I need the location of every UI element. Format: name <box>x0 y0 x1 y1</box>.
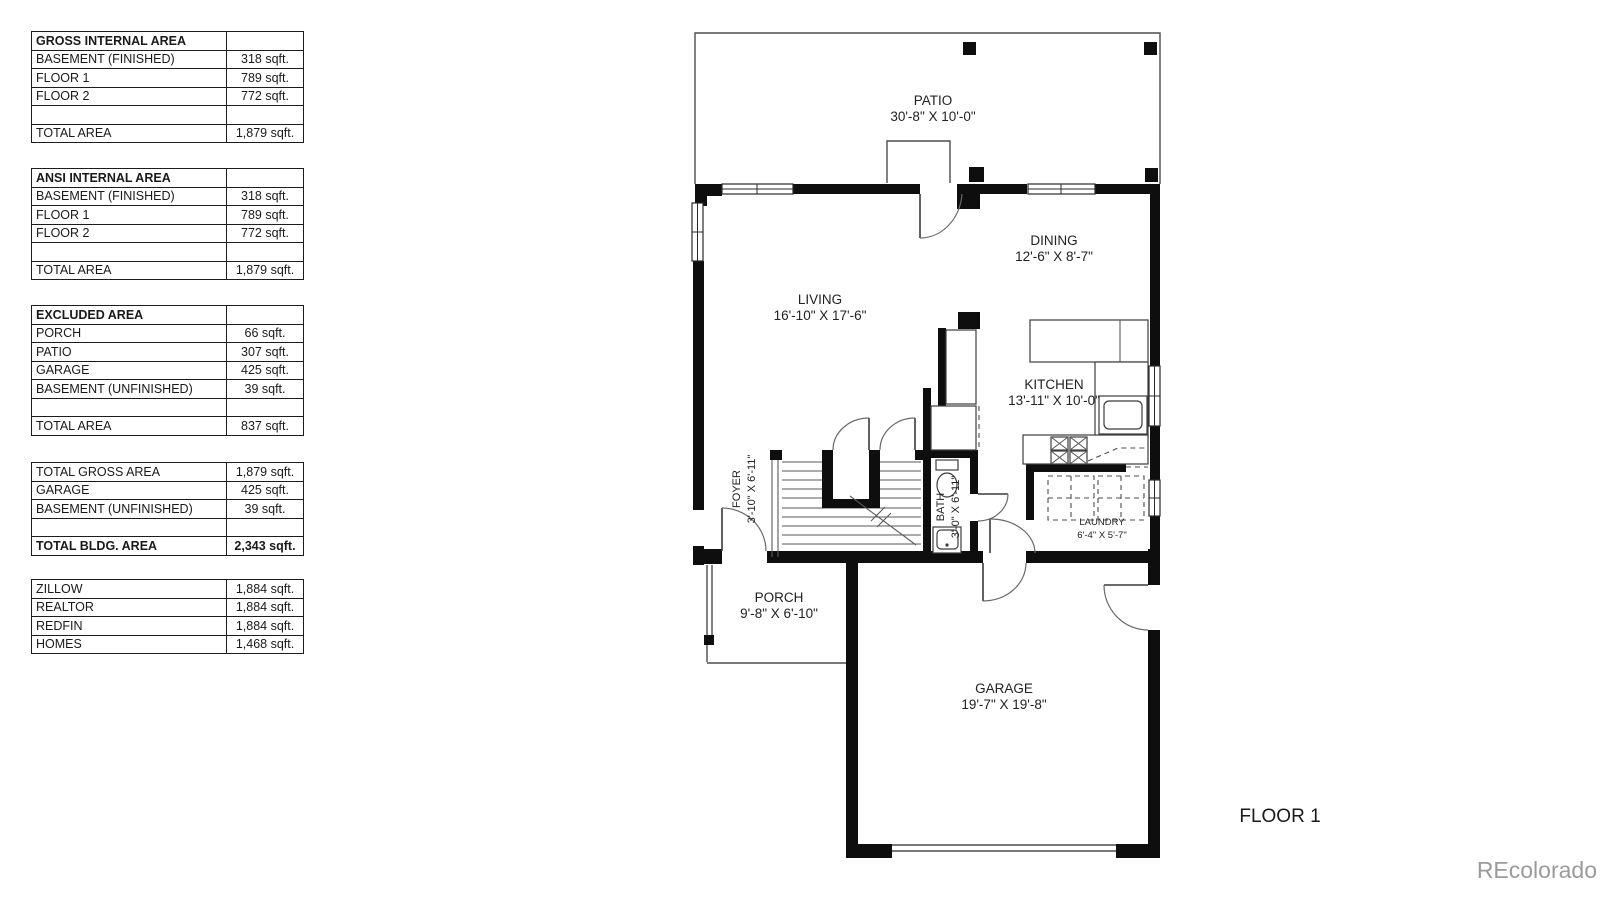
porch-post <box>704 635 714 645</box>
floor-title: FLOOR 1 <box>1239 806 1320 827</box>
room-dims-bath: 3'-0" X 6'-11" <box>950 476 962 539</box>
kitchen-peninsula <box>1030 320 1148 362</box>
window-left-living <box>692 203 703 261</box>
front-door <box>722 508 766 551</box>
watermark: REcolorado <box>1477 857 1597 883</box>
room-dims-garage: 19'-7" X 19'-8" <box>961 697 1046 712</box>
window-right-laundry <box>1149 480 1160 516</box>
patio-post <box>969 167 984 182</box>
room-label-bath: BATH <box>935 493 947 522</box>
room-label-foyer: FOYER <box>731 470 743 508</box>
window-top-right <box>1028 184 1095 194</box>
stair-direction-line <box>850 496 916 545</box>
laundry-door <box>990 519 1035 553</box>
room-label-porch: PORCH <box>755 590 804 605</box>
room-label-kitchen: KITCHEN <box>1024 377 1083 392</box>
patio-post <box>1145 168 1158 182</box>
laundry-appliances <box>1048 476 1144 520</box>
window-top-left <box>722 184 793 194</box>
window-right-kitchen <box>1149 366 1160 426</box>
room-dims-kitchen: 13'-11" X 10'-0" <box>1008 393 1100 408</box>
room-dims-patio: 30'-8" X 10'-0" <box>890 109 975 124</box>
room-label-laundry: LAUNDRY <box>1079 517 1125 528</box>
room-dims-porch: 9'-8" X 6'-10" <box>740 606 818 621</box>
toilet-tank <box>936 460 958 470</box>
garage-side-door <box>1104 585 1148 630</box>
room-label-dining: DINING <box>1030 233 1077 248</box>
room-dims-living: 16'-10" X 17'-6" <box>774 308 867 323</box>
room-dims-dining: 12'-6" X 8'-7" <box>1015 249 1093 264</box>
room-label-garage: GARAGE <box>975 681 1033 696</box>
garage-entry-door <box>983 563 1026 601</box>
room-label-patio: PATIO <box>914 93 953 108</box>
bath-door <box>978 494 1008 521</box>
closet-door-left <box>833 418 869 450</box>
garage-door <box>892 845 1116 851</box>
patio-post <box>1144 42 1157 55</box>
floorplan-drawing: PATIO 30'-8" X 10'-0" DINING 12'-6" X 8'… <box>0 0 1600 899</box>
patio-door <box>920 194 962 238</box>
closet-door-right <box>880 418 915 450</box>
room-label-living: LIVING <box>798 292 842 307</box>
room-dims-laundry: 6'-4" X 5'-7" <box>1077 530 1126 541</box>
kitchen-fixtures <box>1023 320 1148 464</box>
staircase <box>770 450 931 557</box>
patio-post <box>963 42 976 55</box>
room-dims-foyer: 3'-10" X 6'-11" <box>746 455 758 524</box>
stair-wall <box>822 499 880 508</box>
